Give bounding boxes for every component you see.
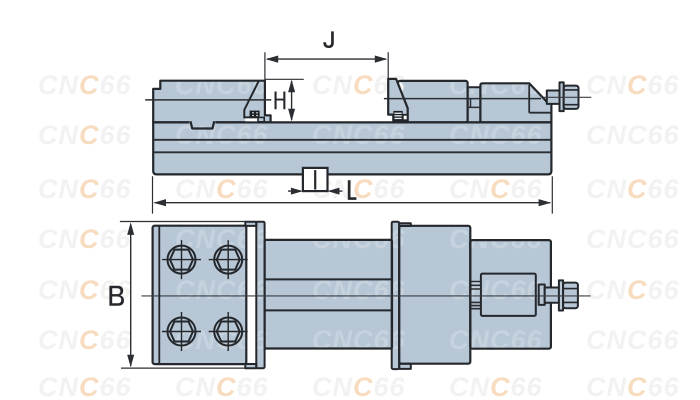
svg-text:CNC66: CNC66 [175,372,269,400]
svg-text:CNC66: CNC66 [586,372,680,400]
svg-text:CNC66: CNC66 [586,70,680,100]
svg-text:CNC66: CNC66 [449,325,543,355]
svg-text:CNC66: CNC66 [38,275,132,305]
svg-text:CNC66: CNC66 [586,120,680,150]
svg-text:CNC66: CNC66 [586,174,680,204]
svg-text:CNC66: CNC66 [38,70,132,100]
svg-text:CNC66: CNC66 [38,174,132,204]
svg-text:CNC66: CNC66 [38,325,132,355]
svg-text:CNC66: CNC66 [175,70,269,100]
svg-text:CNC66: CNC66 [449,372,543,400]
svg-text:CNC66: CNC66 [586,275,680,305]
svg-text:CNC66: CNC66 [312,120,406,150]
svg-text:CNC66: CNC66 [586,325,680,355]
svg-text:CNC66: CNC66 [175,275,269,305]
svg-text:CNC66: CNC66 [449,120,543,150]
svg-text:CNC66: CNC66 [38,372,132,400]
svg-text:CNC66: CNC66 [449,174,543,204]
svg-text:CNC66: CNC66 [175,174,269,204]
svg-text:CNC66: CNC66 [38,224,132,254]
svg-text:CNC66: CNC66 [449,275,543,305]
svg-text:CNC66: CNC66 [586,224,680,254]
svg-text:CNC66: CNC66 [312,372,406,400]
svg-text:CNC66: CNC66 [175,120,269,150]
svg-text:CNC66: CNC66 [38,120,132,150]
